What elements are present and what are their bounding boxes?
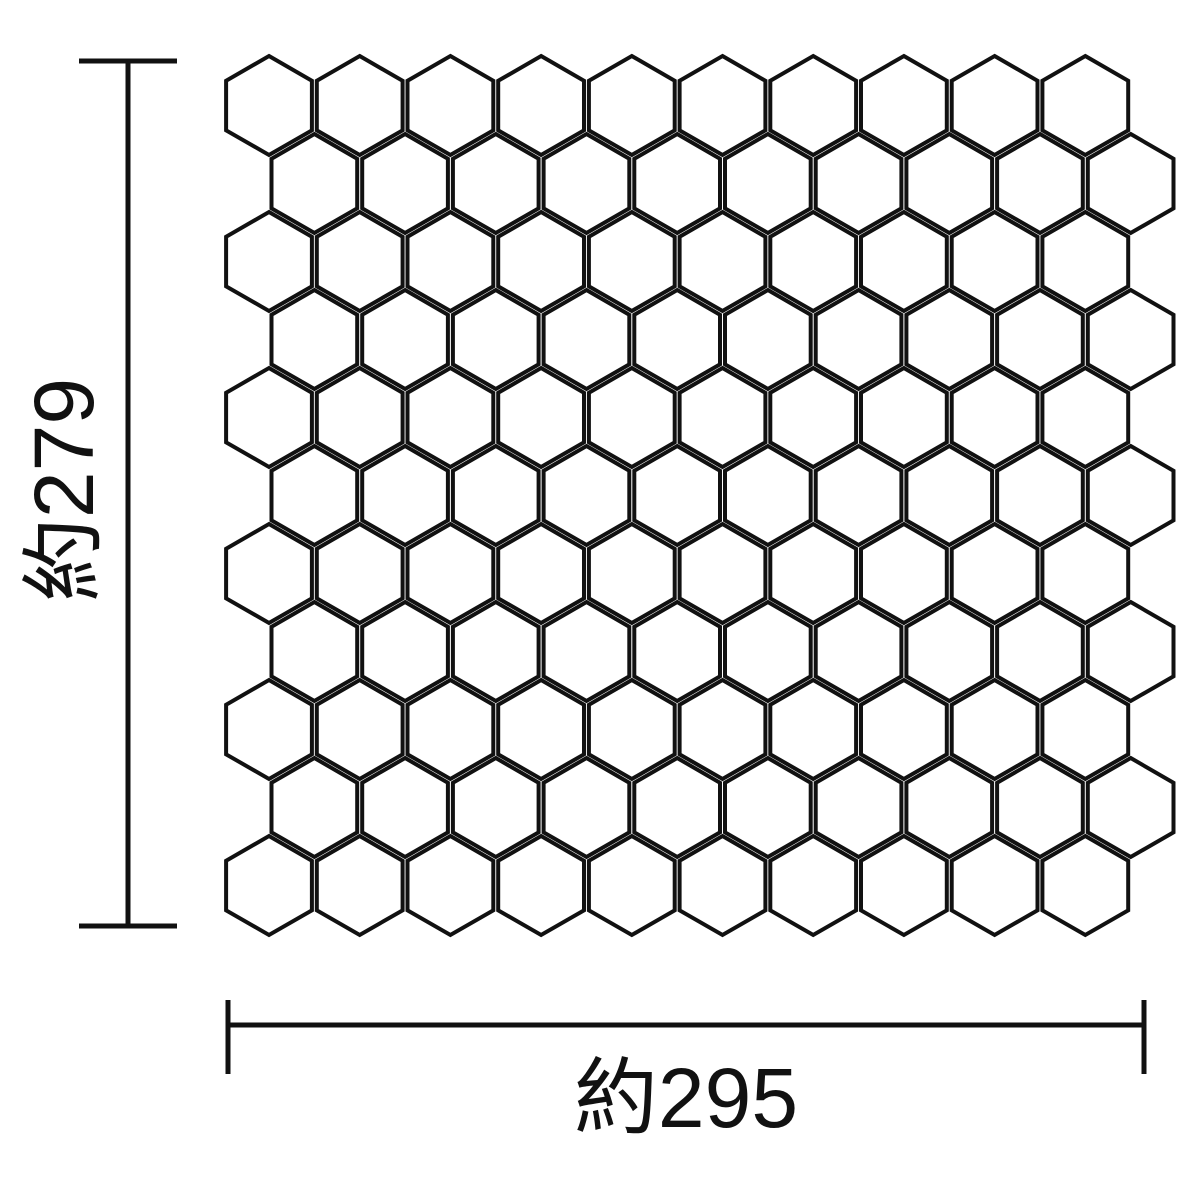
hex-tile — [362, 134, 448, 233]
hex-tile — [680, 836, 766, 935]
hex-tile — [861, 524, 947, 623]
hex-tile — [816, 290, 902, 389]
hex-tile — [997, 758, 1083, 857]
hex-tile — [725, 602, 811, 701]
hex-tile — [453, 290, 539, 389]
hex-tile — [997, 602, 1083, 701]
hex-tile — [725, 758, 811, 857]
hex-tile — [1042, 212, 1128, 311]
hex-tile — [1088, 134, 1174, 233]
hex-tile — [544, 134, 630, 233]
hex-tile — [997, 290, 1083, 389]
hex-tile — [952, 836, 1038, 935]
height-dimension-label: 約279 — [17, 378, 111, 602]
hex-tile — [1042, 680, 1128, 779]
hex-tile — [770, 680, 856, 779]
hex-tile — [770, 836, 856, 935]
hex-tile — [1088, 290, 1174, 389]
hex-tile — [861, 368, 947, 467]
hex-tile — [589, 836, 675, 935]
hex-tile — [861, 212, 947, 311]
hex-tile — [272, 446, 358, 545]
hex-tile — [1042, 56, 1128, 155]
hex-tile — [680, 368, 766, 467]
hex-tile — [725, 134, 811, 233]
hex-tile — [362, 602, 448, 701]
hex-tile — [408, 836, 494, 935]
hex-tile — [589, 680, 675, 779]
hex-tile — [498, 56, 584, 155]
hex-tile — [997, 134, 1083, 233]
hex-tile — [634, 134, 720, 233]
hex-tile — [317, 680, 403, 779]
hex-tile — [226, 212, 312, 311]
hex-tile — [544, 602, 630, 701]
hexagon-tile-grid — [226, 56, 1173, 935]
hex-tile — [725, 446, 811, 545]
hex-tile — [317, 56, 403, 155]
hex-tile — [498, 368, 584, 467]
hex-tile — [317, 368, 403, 467]
hex-tile — [770, 368, 856, 467]
mosaic-sheet-drawing: 約279 約295 — [0, 0, 1200, 1200]
hex-tile — [1088, 446, 1174, 545]
hex-tile — [906, 758, 992, 857]
hex-tile — [226, 524, 312, 623]
hex-tile — [770, 56, 856, 155]
hex-tile — [725, 290, 811, 389]
hex-tile — [317, 524, 403, 623]
hex-tile — [906, 446, 992, 545]
hex-tile — [634, 446, 720, 545]
hex-tile — [408, 524, 494, 623]
hex-tile — [861, 680, 947, 779]
hex-tile — [272, 602, 358, 701]
hex-tile — [408, 680, 494, 779]
hex-tile — [544, 758, 630, 857]
hex-tile — [906, 602, 992, 701]
vertical-dimension: 約279 — [17, 61, 177, 926]
hex-tile — [861, 56, 947, 155]
hex-tile — [317, 212, 403, 311]
hex-tile — [952, 56, 1038, 155]
hex-tile — [498, 836, 584, 935]
hex-tile — [770, 212, 856, 311]
hex-tile — [498, 524, 584, 623]
hex-tile — [816, 134, 902, 233]
hex-tile — [453, 446, 539, 545]
hex-tile — [861, 836, 947, 935]
hex-tile — [272, 758, 358, 857]
hex-tile — [362, 446, 448, 545]
hex-tile — [680, 524, 766, 623]
hex-tile — [1088, 758, 1174, 857]
hex-tile — [816, 758, 902, 857]
hex-tile — [408, 368, 494, 467]
hex-tile — [680, 212, 766, 311]
hex-tile — [770, 524, 856, 623]
hex-tile — [634, 758, 720, 857]
hex-tile — [1042, 836, 1128, 935]
hex-tile — [589, 524, 675, 623]
hex-tile — [498, 212, 584, 311]
hex-tile — [362, 290, 448, 389]
hex-tile — [453, 602, 539, 701]
hex-tile — [453, 134, 539, 233]
hex-tile — [589, 56, 675, 155]
hex-tile — [226, 56, 312, 155]
hex-tile — [906, 290, 992, 389]
hex-tile — [226, 836, 312, 935]
hex-tile — [680, 56, 766, 155]
hex-tile — [498, 680, 584, 779]
hex-tile — [952, 212, 1038, 311]
hex-tile — [997, 446, 1083, 545]
hex-tile — [408, 56, 494, 155]
tile-dimension-diagram: 約279 約295 — [0, 0, 1200, 1200]
hex-tile — [816, 446, 902, 545]
horizontal-dimension: 約295 — [228, 1000, 1144, 1145]
hex-tile — [952, 368, 1038, 467]
hex-tile — [634, 290, 720, 389]
hex-tile — [680, 680, 766, 779]
hex-tile — [272, 290, 358, 389]
width-dimension-label: 約295 — [574, 1051, 798, 1145]
hex-tile — [453, 758, 539, 857]
hex-tile — [317, 836, 403, 935]
hex-tile — [226, 368, 312, 467]
hex-tile — [1088, 602, 1174, 701]
hex-tile — [952, 524, 1038, 623]
hex-tile — [272, 134, 358, 233]
hex-tile — [226, 680, 312, 779]
hex-tile — [589, 212, 675, 311]
hex-tile — [1042, 524, 1128, 623]
hex-tile — [906, 134, 992, 233]
hex-tile — [408, 212, 494, 311]
hex-tile — [544, 290, 630, 389]
hex-tile — [816, 602, 902, 701]
hex-tile — [634, 602, 720, 701]
hex-tile — [1042, 368, 1128, 467]
hex-tile — [589, 368, 675, 467]
hex-tile — [952, 680, 1038, 779]
hex-tile — [362, 758, 448, 857]
hex-tile — [544, 446, 630, 545]
